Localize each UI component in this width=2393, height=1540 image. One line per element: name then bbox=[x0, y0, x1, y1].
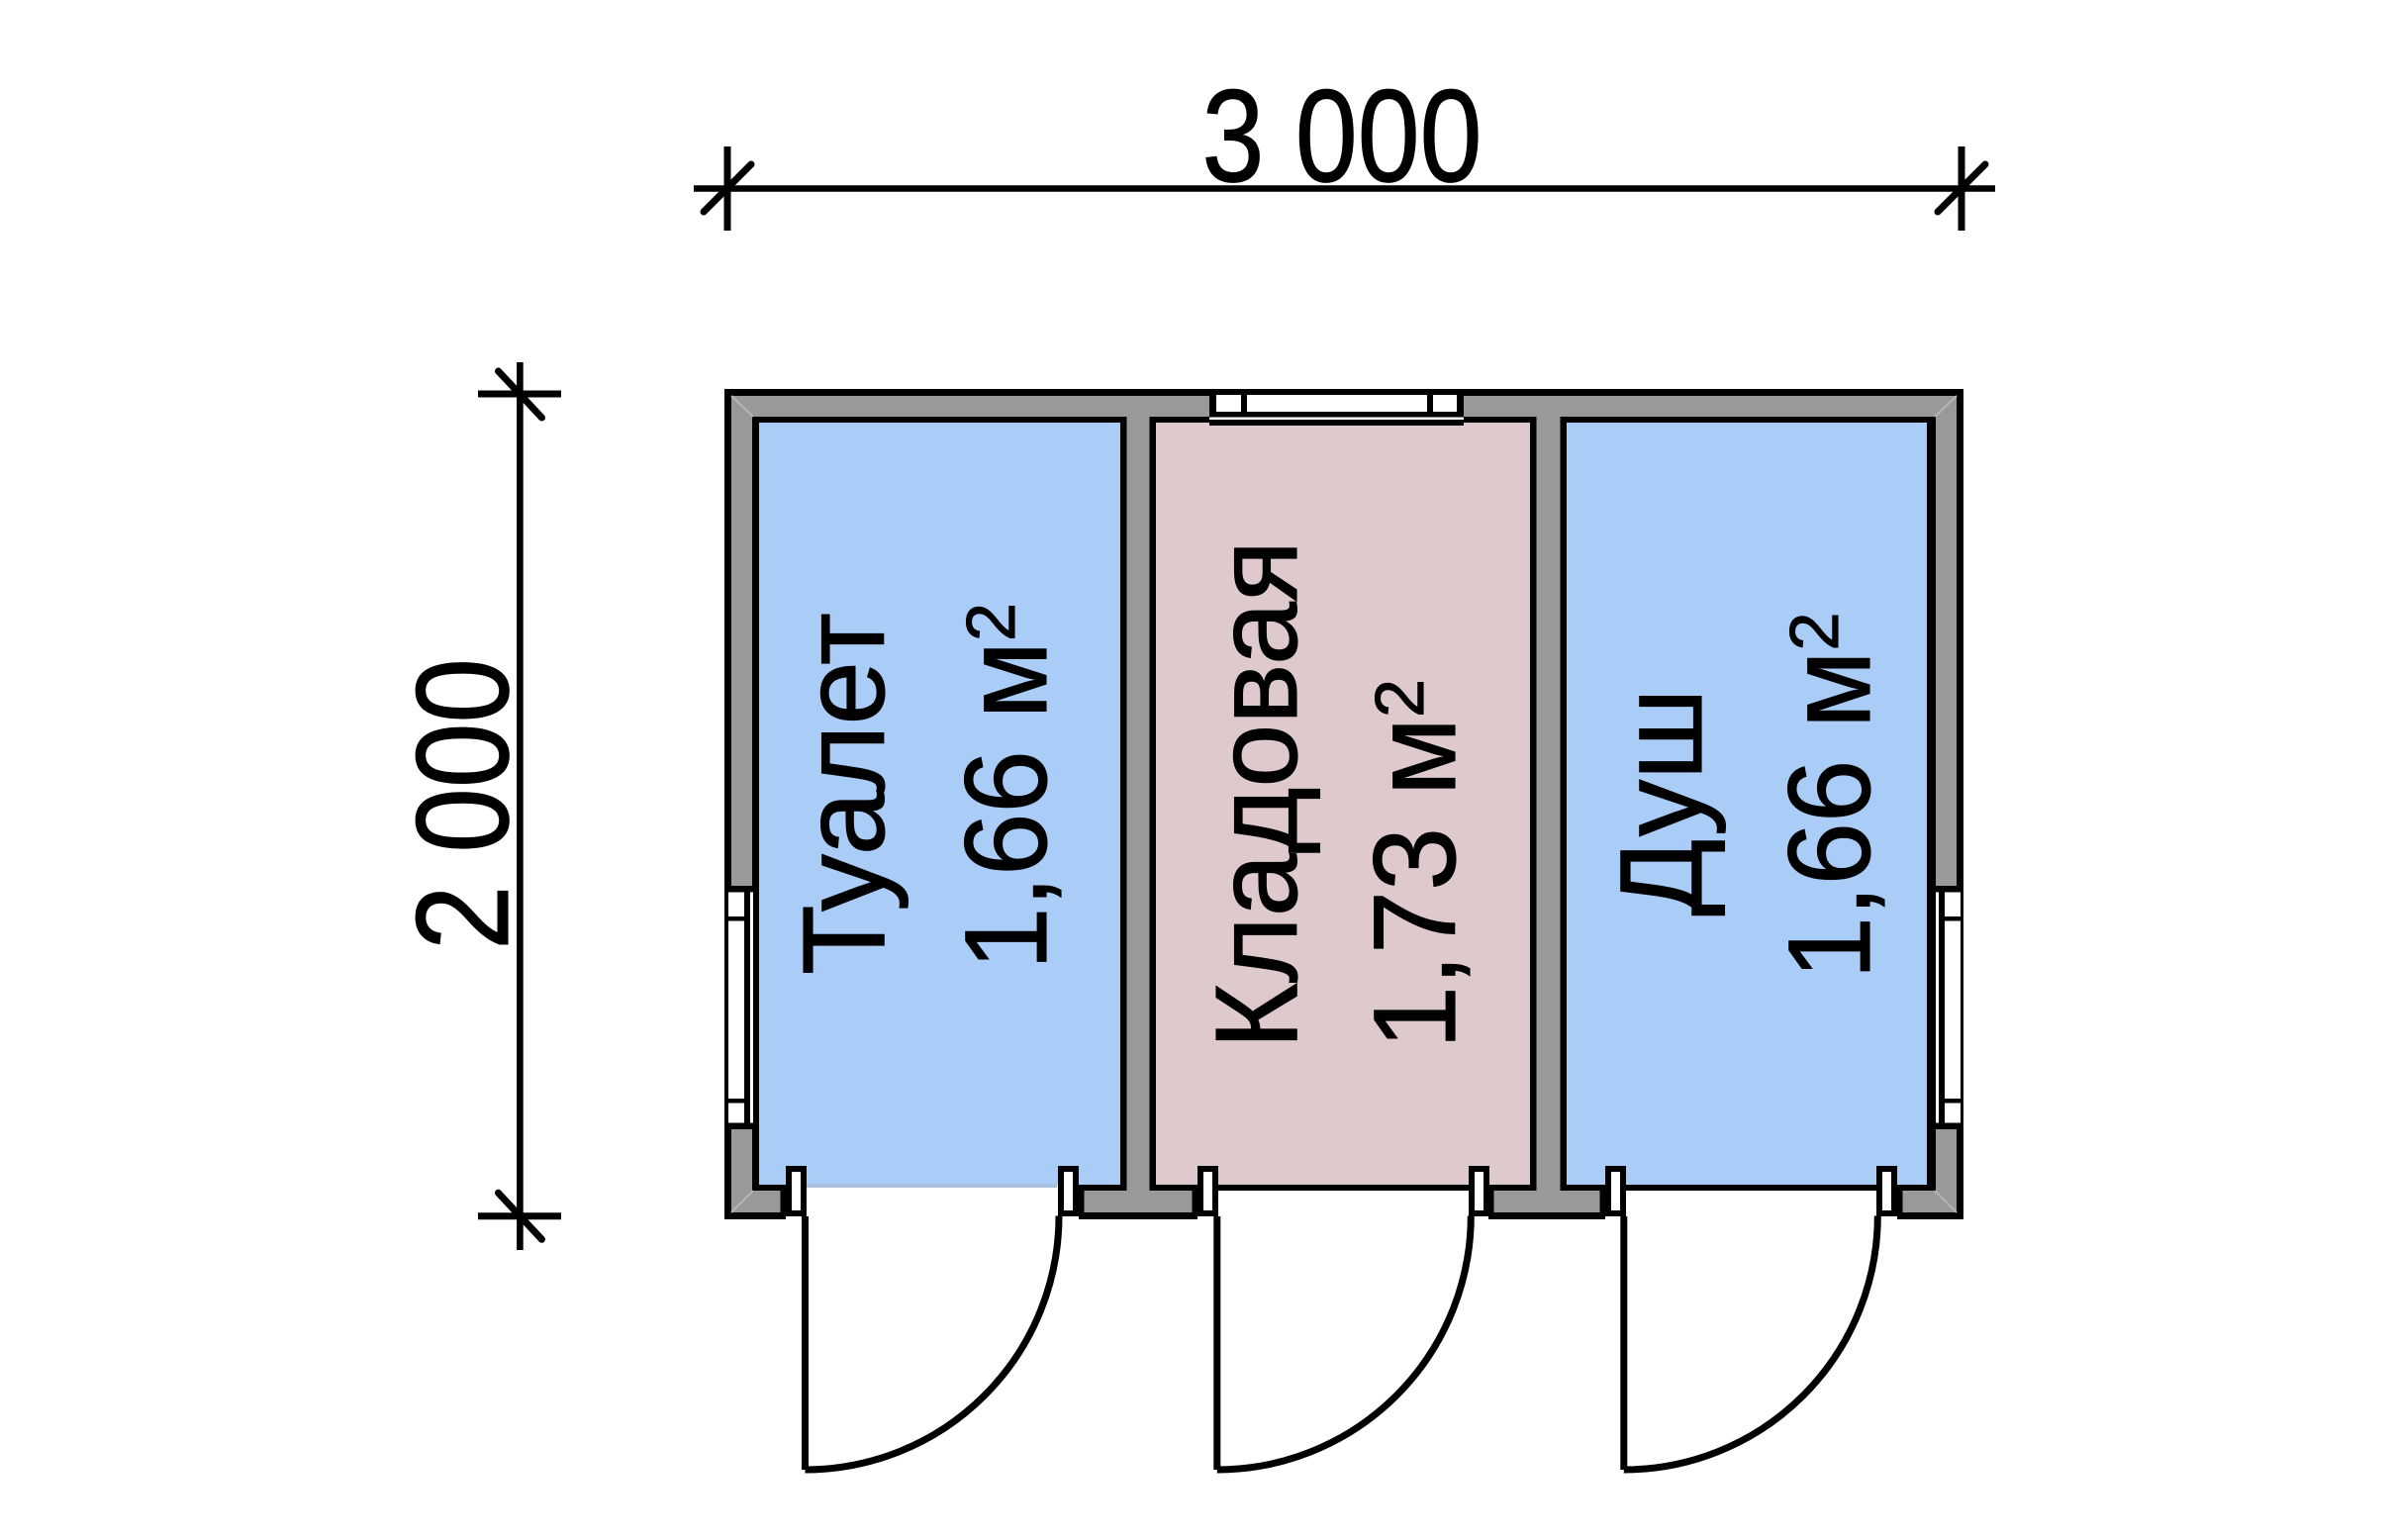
svg-text:Кладовая: Кладовая bbox=[1192, 540, 1322, 1049]
svg-text:1,66 м2: 1,66 м2 bbox=[1765, 613, 1895, 980]
svg-text:2 000: 2 000 bbox=[390, 658, 536, 950]
svg-text:Душ: Душ bbox=[1596, 689, 1727, 916]
svg-text:3 000: 3 000 bbox=[1202, 63, 1483, 210]
svg-text:1,73 м2: 1,73 м2 bbox=[1350, 679, 1481, 1049]
svg-text:Туалет: Туалет bbox=[779, 613, 909, 975]
svg-text:1,66 м2: 1,66 м2 bbox=[941, 603, 1072, 970]
